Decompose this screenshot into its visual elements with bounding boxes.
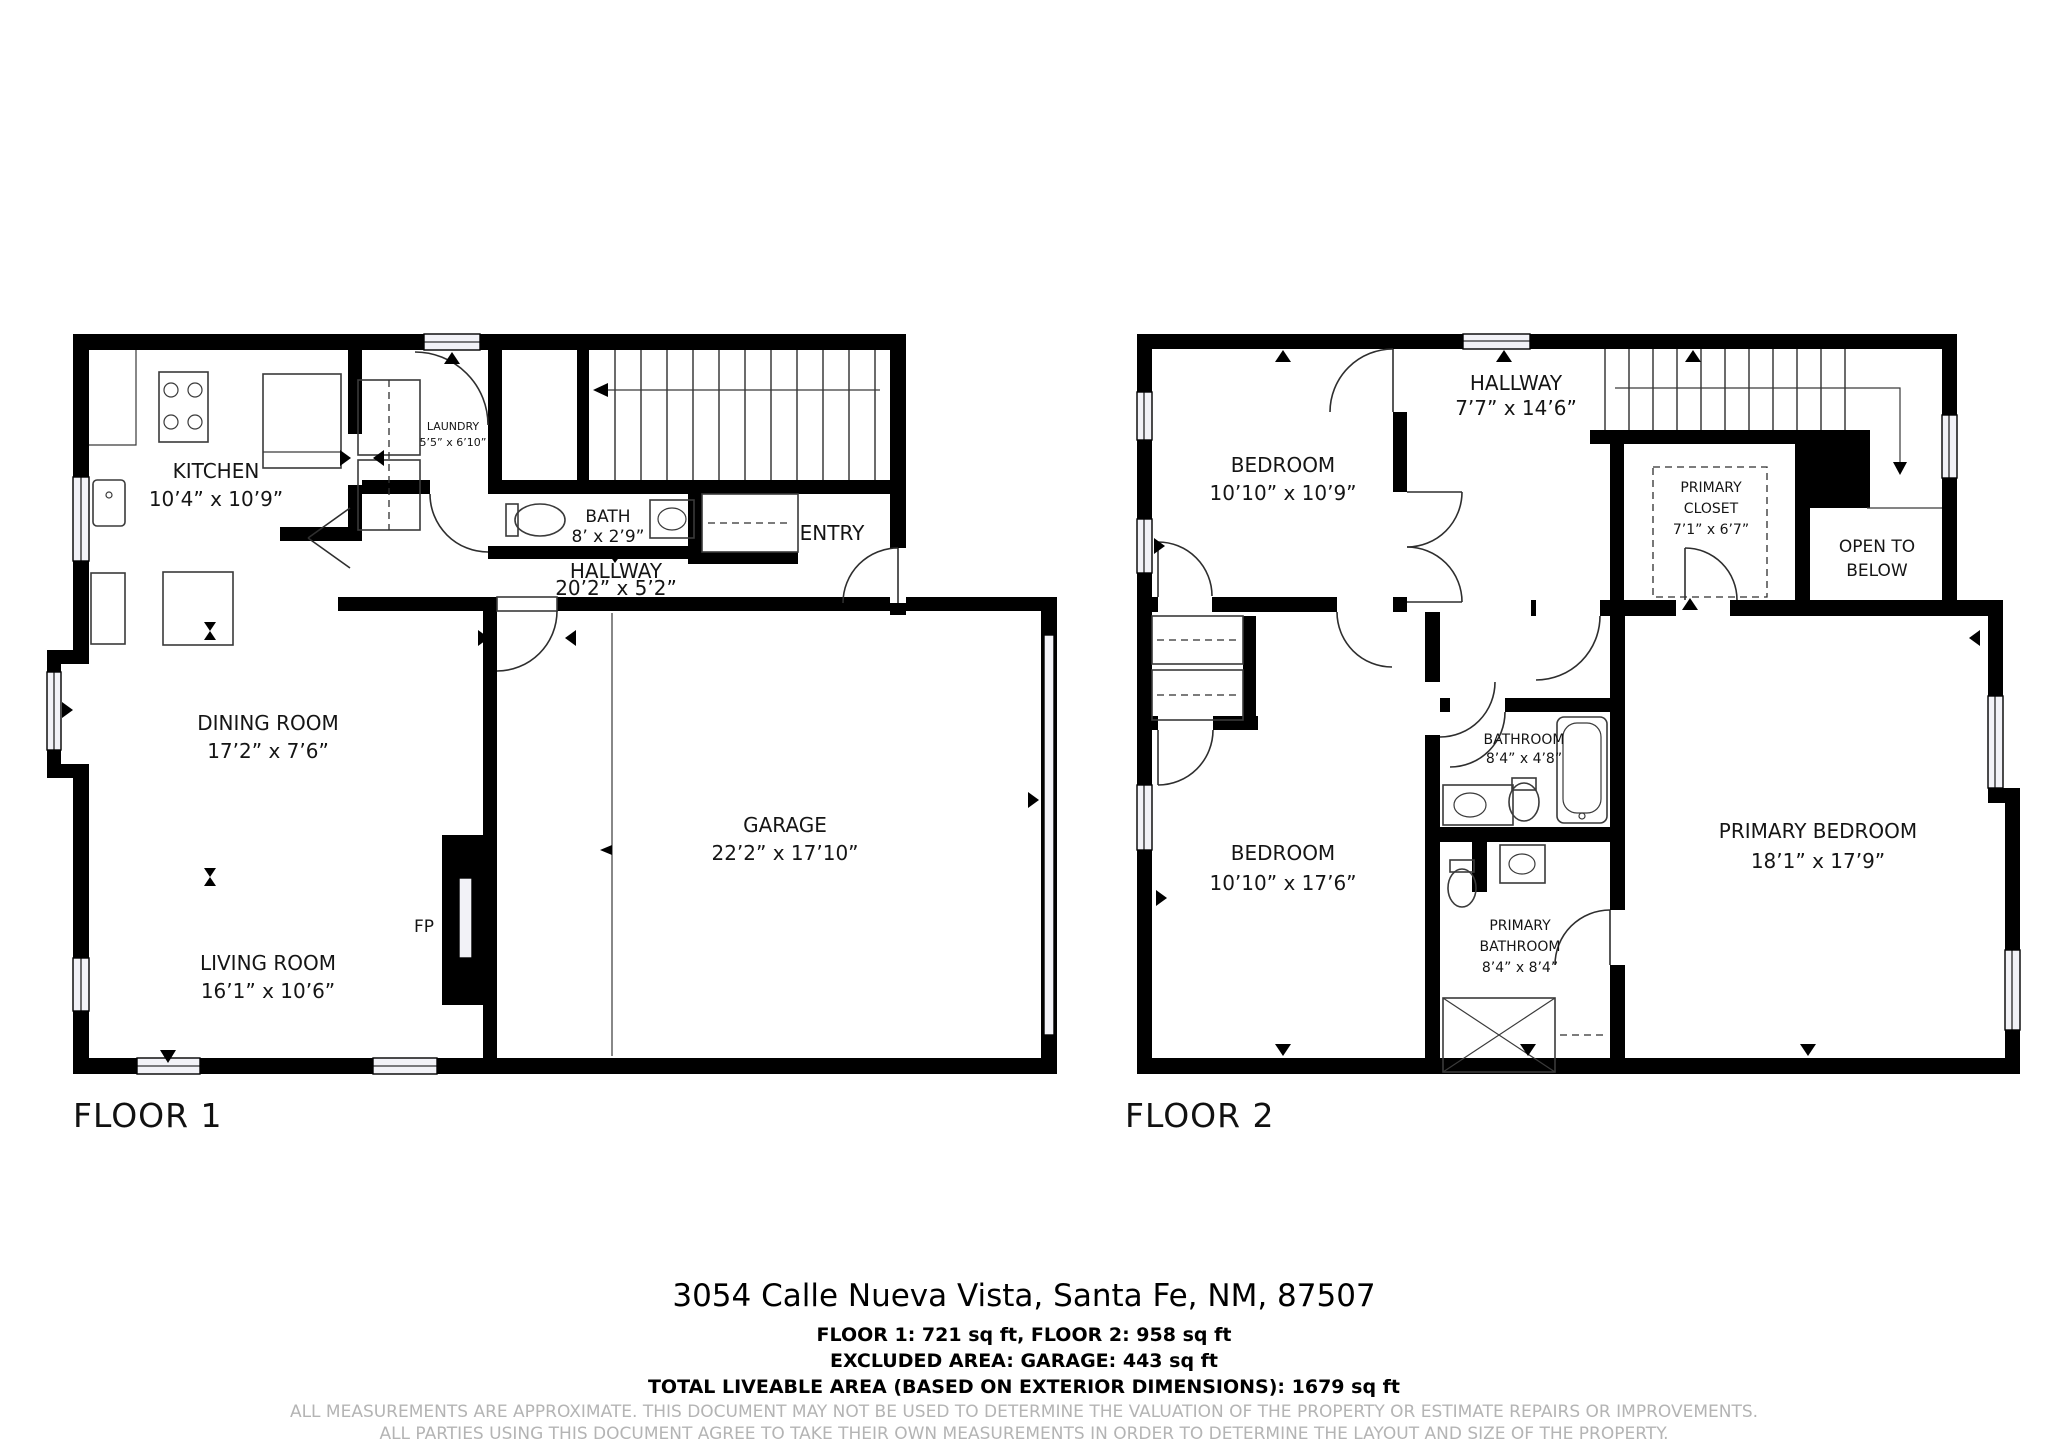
room-dims-kitchen: 10’4” x 10’9” [149,487,283,511]
room-dims-bath: 8’ x 2’9” [572,527,645,547]
room-dims-primary-closet: 7’1” x 6’7” [1673,522,1749,538]
refrigerator [263,374,341,468]
property-address: 3054 Calle Nueva Vista, Santa Fe, NM, 87… [0,1278,2048,1314]
room-dims-laundry: 5’5” x 6’10” [420,436,487,449]
excluded-area: EXCLUDED AREA: GARAGE: 443 sq ft [0,1350,2048,1372]
toilet [515,504,565,536]
room-label-kitchen: KITCHEN [173,459,260,483]
floor1-plan: KITCHEN 10’4” x 10’9” LAUNDRY 5’5” x 6’1… [40,330,1080,1090]
floorplan-document: KITCHEN 10’4” x 10’9” LAUNDRY 5’5” x 6’1… [0,0,2048,1448]
primary-bathroom-fixtures [1443,845,1608,1072]
total-liveable-area: TOTAL LIVEABLE AREA (BASED ON EXTERIOR D… [0,1376,2048,1398]
room-label-open-below-1: OPEN TO [1839,537,1915,557]
room-label-primary-closet-1: PRIMARY [1680,480,1742,496]
disclaimer-line2: ALL PARTIES USING THIS DOCUMENT AGREE TO… [0,1424,2048,1444]
room-label-primary-closet-2: CLOSET [1684,501,1739,517]
floor2-windows [1137,334,2020,1030]
stair-direction-arrow [593,383,608,397]
garage-door [1044,635,1054,1035]
room-label-primary-bedroom: PRIMARY BEDROOM [1719,819,1917,843]
floor2-stairs [1605,349,1942,508]
primary-sink [1500,845,1545,883]
garage-track [600,613,612,1056]
room-dims-bedroom2: 10’10” x 17’6” [1209,871,1356,895]
room-label-bedroom1: BEDROOM [1231,453,1335,477]
room-label-garage: GARAGE [743,813,827,837]
kitchen-island [163,572,233,645]
room-dims-bathroom: 8’4” x 4’8” [1486,751,1562,767]
room-dims-hallway2: 7’7” x 14’6” [1455,396,1577,420]
room-label-primary-bathroom-2: BATHROOM [1479,939,1560,955]
floor1-stairs [593,350,880,480]
room-dims-bedroom1: 10’10” x 10’9” [1209,481,1356,505]
stove [159,372,208,442]
floor1-drawing: KITCHEN 10’4” x 10’9” LAUNDRY 5’5” x 6’1… [40,330,1080,1090]
room-label-laundry: LAUNDRY [427,420,480,433]
laundry-fixtures [358,380,420,530]
room-dims-garage: 22’2” x 17’10” [711,841,858,865]
floor-areas: FLOOR 1: 721 sq ft, FLOOR 2: 958 sq ft [0,1324,2048,1346]
bedroom2-closets [1152,616,1243,720]
disclaimer-line1: ALL MEASUREMENTS ARE APPROXIMATE. THIS D… [0,1402,2048,1422]
room-label-bath: BATH [585,507,630,527]
room-label-primary-bathroom-1: PRIMARY [1489,918,1551,934]
room-label-dining: DINING ROOM [197,711,339,735]
floor1-title: FLOOR 1 [73,1096,223,1135]
entry-closet [702,494,798,552]
stair-down-arrow [1893,462,1907,475]
room-dims-living: 16’1” x 10’6” [201,979,335,1003]
room-label-fp: FP [414,917,434,937]
room-label-bedroom2: BEDROOM [1231,841,1335,865]
room-dims-primary-bathroom: 8’4” x 8’4” [1482,960,1558,976]
floor1-exterior-walls [47,334,1057,1074]
room-label-living: LIVING ROOM [200,951,336,975]
floor2-plan: BEDROOM 10’10” x 10’9” HALLWAY 7’7” x 14… [1100,330,2040,1090]
floor2-drawing: BEDROOM 10’10” x 10’9” HALLWAY 7’7” x 14… [1100,330,2040,1090]
room-label-hallway2: HALLWAY [1470,371,1563,395]
room-label-open-below-2: BELOW [1846,561,1908,581]
room-label-bathroom: BATHROOM [1483,732,1564,748]
fireplace [442,835,497,1005]
room-dims-dining: 17’2” x 7’6” [207,739,329,763]
bath-sink [650,500,694,538]
room-dims-primary-bedroom: 18’1” x 17’9” [1751,849,1885,873]
toilet [1448,869,1476,907]
floor1-room-labels: KITCHEN 10’4” x 10’9” LAUNDRY 5’5” x 6’1… [149,420,865,1003]
kitchen-sink [93,480,125,526]
floor2-title: FLOOR 2 [1125,1096,1275,1135]
room-dims-hallway: 20’2” x 5’2” [555,576,677,600]
room-label-entry: ENTRY [800,521,865,545]
